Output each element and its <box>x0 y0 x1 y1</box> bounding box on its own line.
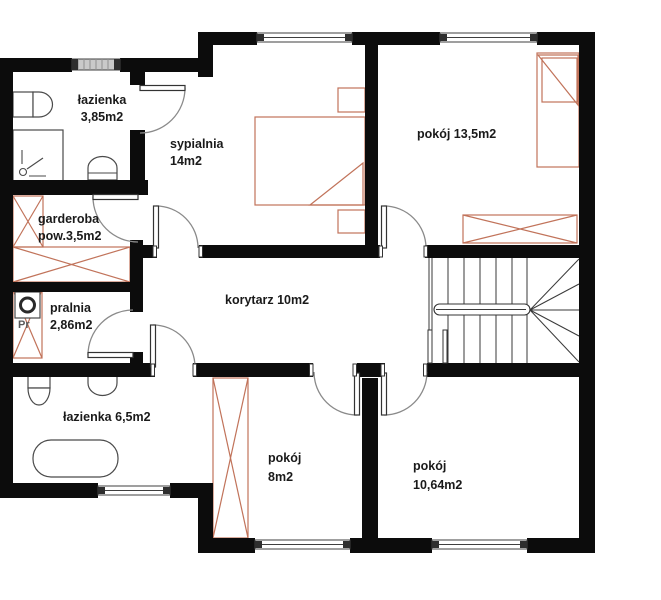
staircase <box>428 258 579 363</box>
door-leaf-pokoj1064 <box>382 373 387 415</box>
nightstand-bottom <box>338 210 365 233</box>
door-arc-lazienka-gorna <box>140 88 185 133</box>
toilet-upper-bowl <box>33 92 53 117</box>
door-arc-pokoj135 <box>384 206 426 248</box>
room-label-pralnia: pralnia 2,86m2 <box>50 300 92 334</box>
room-label-pokoj-135: pokój 13,5m2 <box>417 126 496 143</box>
door-leaf-pokoj135 <box>382 206 387 248</box>
door-leaf-sypialnia <box>154 206 159 248</box>
toilet-upper <box>13 92 33 117</box>
bathtub <box>33 440 118 477</box>
bed-fold-pokoj135 <box>538 55 578 105</box>
door-arc-sypialnia <box>156 206 198 248</box>
stair-winder <box>530 259 579 310</box>
bed-sypialnia <box>255 117 365 205</box>
floor-plan-drawing <box>0 0 661 600</box>
bed-pokoj135-inner <box>542 58 577 102</box>
sink-upper <box>88 157 117 181</box>
door-leaf-garderoba <box>93 195 138 200</box>
washing-machine <box>15 292 40 318</box>
room-label-garderoba: garderoba pow.3,5m2 <box>38 211 101 245</box>
room-label-lazienka-dolna: łazienka 6,5m2 <box>63 409 151 426</box>
door-leaf-pralnia <box>88 353 133 358</box>
room-label-korytarz: korytarz 10m2 <box>225 292 309 309</box>
bed-fold-sypialnia <box>310 163 363 205</box>
door-leaf-lazienka-gorna <box>140 86 185 91</box>
floor-plan: łazienka 3,85m2 sypialnia 14m2 pokój 13,… <box>0 0 661 600</box>
washing-machine-label: Pr <box>18 319 30 331</box>
nightstand-top <box>338 88 365 112</box>
room-label-pokoj-1064: pokój 10,64m2 <box>413 457 462 495</box>
door-leaf-pokoj8 <box>355 373 360 415</box>
door-arc-pokoj1064 <box>384 372 427 415</box>
door-arc-lazienka-dolna <box>153 325 195 367</box>
toilet-lower-bowl <box>28 388 50 405</box>
sink-lower <box>88 376 117 396</box>
bed-pokoj135 <box>537 53 579 167</box>
door-leaf-lazienka-dolna <box>151 325 156 367</box>
room-label-pokoj-8: pokój 8m2 <box>268 449 301 487</box>
door-arc-pralnia <box>88 310 133 355</box>
door-arc-pokoj8 <box>314 372 357 415</box>
toilet-lower-cistern <box>28 376 50 388</box>
room-label-lazienka-gorna: łazienka 3,85m2 <box>64 92 140 126</box>
room-label-sypialnia: sypialnia 14m2 <box>170 136 224 170</box>
